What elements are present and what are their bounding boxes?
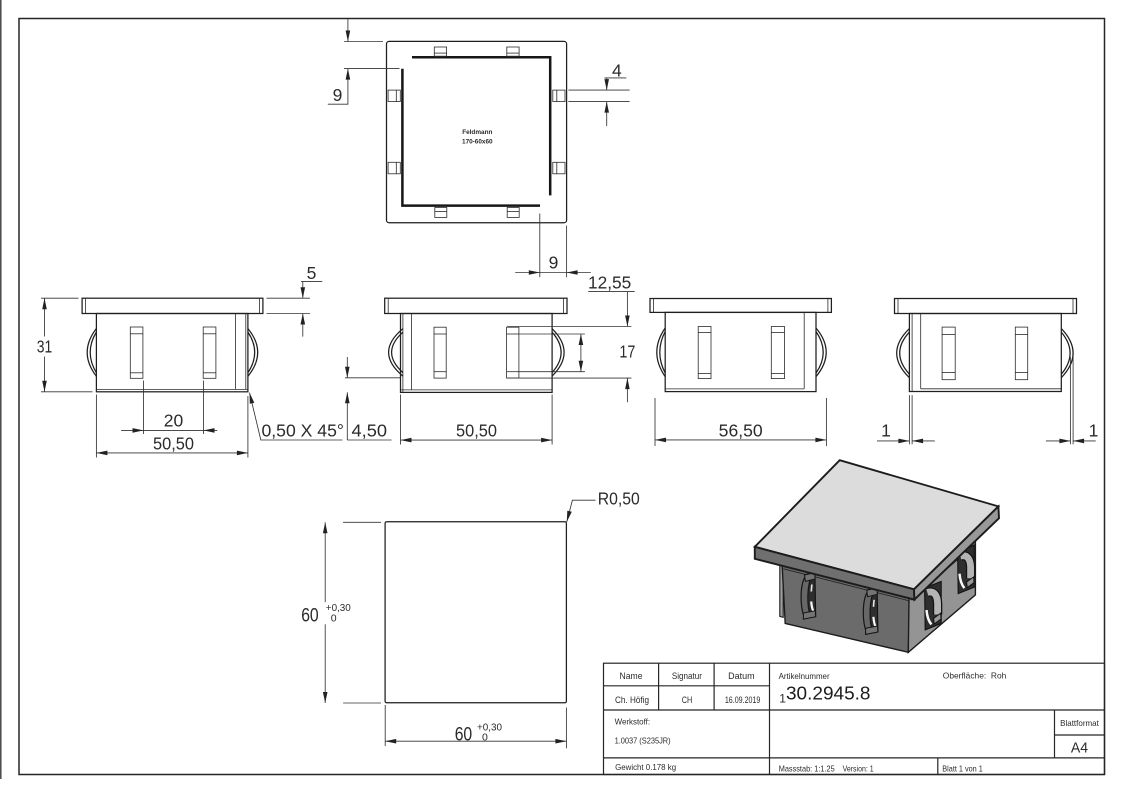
svg-text:+0,30: +0,30 [326, 602, 351, 614]
svg-text:56,50: 56,50 [719, 421, 763, 441]
svg-text:16.09.2019: 16.09.2019 [725, 695, 761, 705]
svg-text:Signatur: Signatur [672, 671, 702, 681]
svg-text:4,50: 4,50 [352, 421, 388, 441]
svg-text:Blatt 1 von 1: Blatt 1 von 1 [942, 763, 983, 773]
svg-text:30.2945.8: 30.2945.8 [786, 683, 871, 704]
svg-text:50,50: 50,50 [153, 433, 194, 453]
svg-text:12,55: 12,55 [588, 273, 631, 293]
svg-text:17: 17 [619, 342, 635, 362]
svg-text:Werkstoff:: Werkstoff: [615, 717, 651, 727]
svg-text:Ch. Höfig: Ch. Höfig [615, 695, 649, 705]
svg-text:0: 0 [331, 612, 337, 624]
svg-text:60: 60 [301, 605, 319, 626]
svg-text:Version: 1: Version: 1 [843, 763, 874, 773]
svg-text:Blattformat: Blattformat [1060, 718, 1099, 728]
svg-text:5: 5 [307, 263, 317, 283]
svg-text:Massstab: 1:1.25: Massstab: 1:1.25 [779, 763, 835, 773]
svg-text:1: 1 [881, 420, 891, 440]
svg-text:0: 0 [482, 732, 488, 744]
svg-text:20: 20 [164, 411, 184, 431]
svg-text:+0,30: +0,30 [477, 721, 502, 733]
svg-text:170-60x60: 170-60x60 [462, 139, 493, 146]
svg-text:Artikelnummer: Artikelnummer [779, 671, 830, 681]
svg-text:60: 60 [455, 724, 473, 745]
svg-text:31: 31 [37, 337, 53, 357]
svg-text:Feldmann: Feldmann [462, 129, 492, 136]
svg-text:4: 4 [612, 61, 622, 81]
svg-text:A4: A4 [1071, 740, 1088, 756]
svg-text:1: 1 [1089, 420, 1099, 440]
svg-text:Datum: Datum [728, 671, 755, 681]
svg-text:R0,50: R0,50 [598, 488, 640, 508]
svg-text:50,50: 50,50 [456, 421, 497, 441]
svg-text:9: 9 [549, 252, 559, 272]
svg-text:CH: CH [682, 695, 693, 705]
svg-text:Oberfläche: Roh: Oberfläche: Roh [943, 671, 1007, 681]
svg-text:Name: Name [620, 671, 643, 681]
svg-text:Gewicht 0.178 kg: Gewicht 0.178 kg [615, 762, 676, 772]
svg-text:9: 9 [333, 85, 343, 105]
svg-text:0,50 X 45°: 0,50 X 45° [262, 421, 344, 441]
svg-text:1.0037 (S235JR): 1.0037 (S235JR) [615, 735, 671, 745]
